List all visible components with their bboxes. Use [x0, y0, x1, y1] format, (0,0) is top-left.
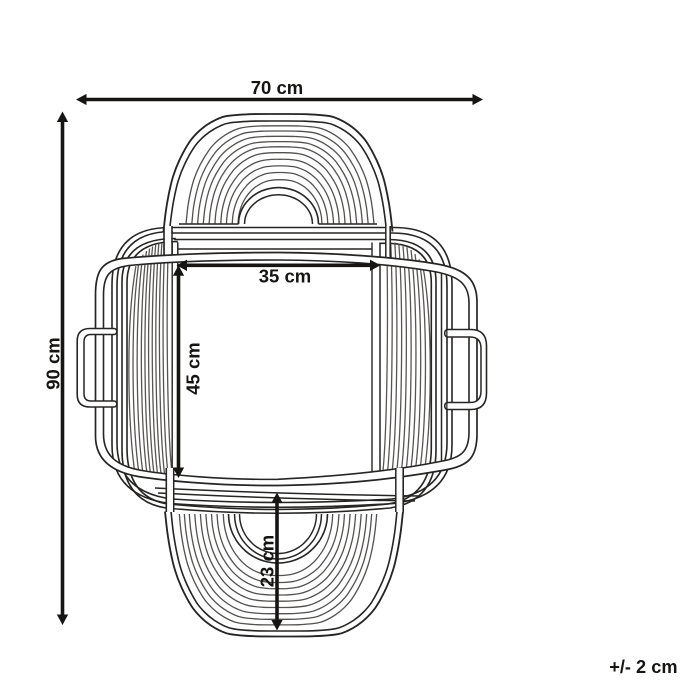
svg-text:+/- 2 cm: +/- 2 cm: [609, 657, 677, 677]
svg-text:23 cm: 23 cm: [257, 535, 278, 587]
svg-text:90 cm: 90 cm: [43, 337, 64, 389]
svg-text:45 cm: 45 cm: [183, 342, 204, 394]
svg-text:35 cm: 35 cm: [259, 266, 311, 287]
svg-text:70 cm: 70 cm: [251, 77, 303, 98]
